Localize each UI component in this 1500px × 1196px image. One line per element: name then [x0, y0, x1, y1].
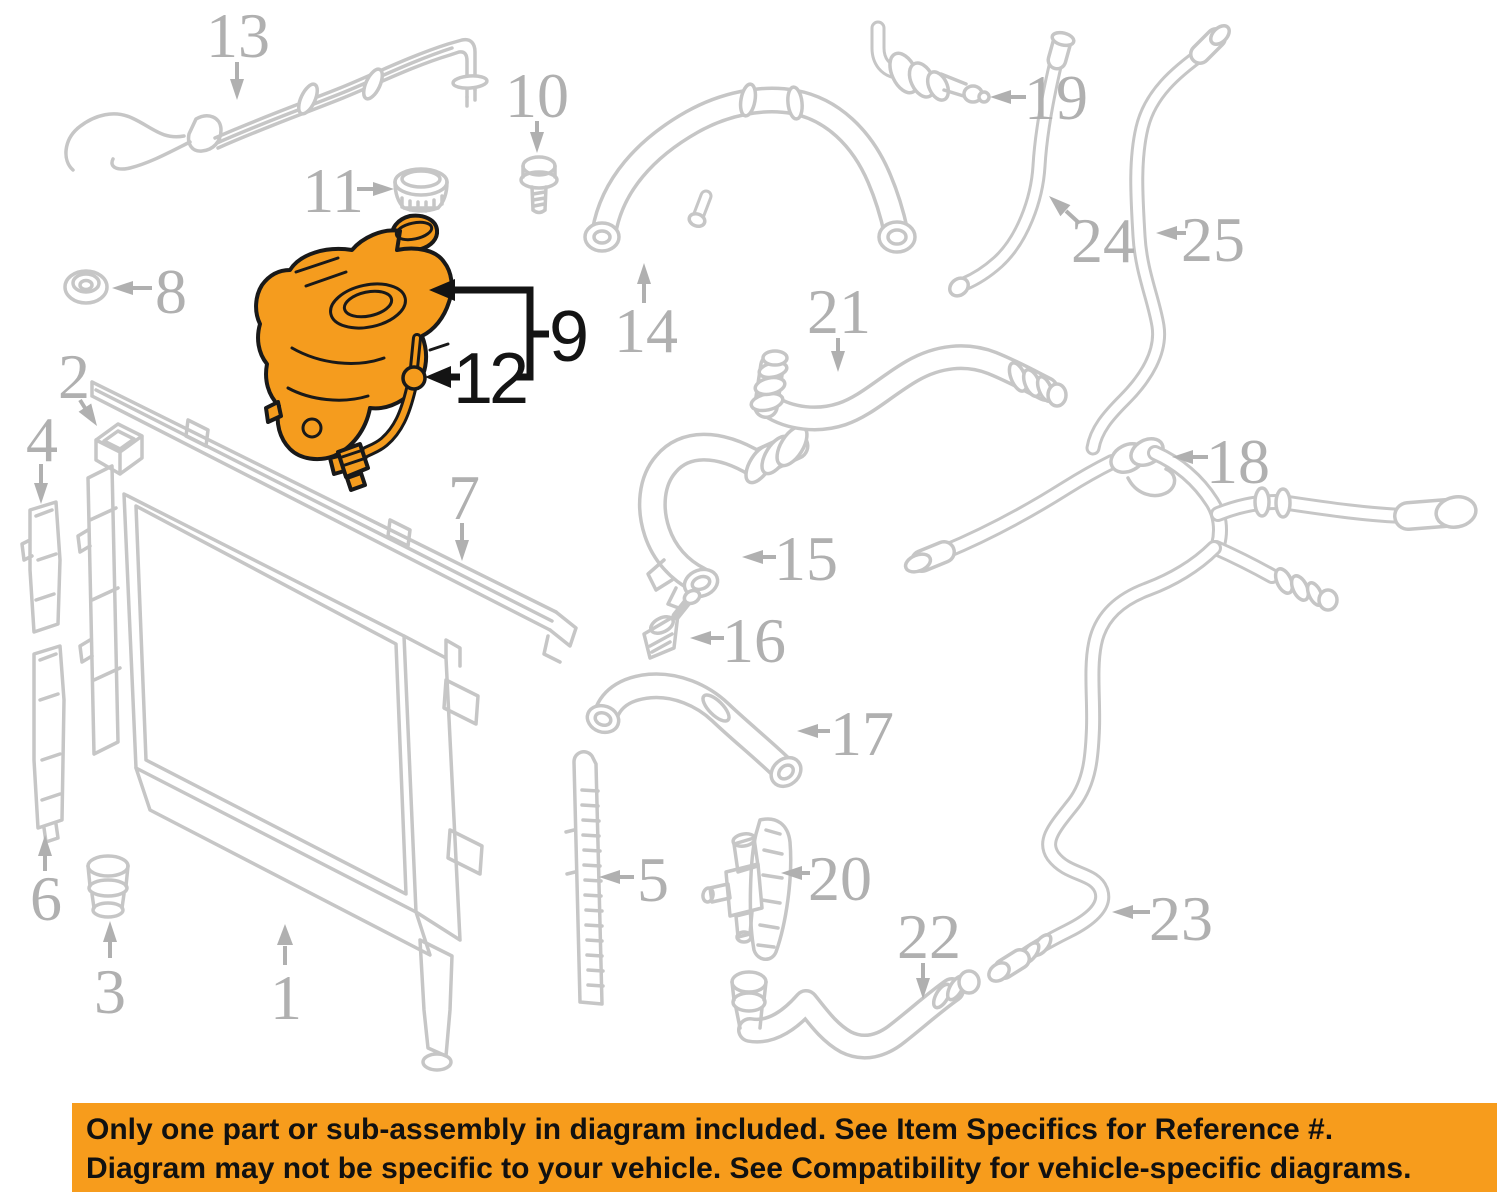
- callout-17-label: 17: [830, 698, 894, 769]
- part-2-bracket: [96, 424, 142, 474]
- part-10-bolt: [521, 157, 557, 213]
- callout-18: 18: [1172, 426, 1270, 497]
- callout-16-label: 16: [722, 605, 786, 676]
- part-6-side-bracket: [34, 646, 64, 842]
- callout-24: 24: [1049, 196, 1135, 276]
- callout-14: 14: [614, 263, 678, 366]
- callout-9-label: 9: [549, 297, 586, 377]
- callout-18-label: 18: [1206, 426, 1270, 497]
- callout-4-label: 4: [26, 404, 58, 475]
- part-19-connector: [878, 28, 989, 103]
- callout-7-label: 7: [448, 462, 480, 533]
- part-17-hose: [584, 686, 807, 792]
- callout-22-label: 22: [897, 901, 961, 972]
- callout-19: 19: [990, 62, 1088, 133]
- callout-20: 20: [781, 843, 872, 914]
- callout-17: 17: [797, 698, 894, 769]
- callout-4: 4: [26, 404, 58, 504]
- callout-7: 7: [448, 462, 480, 561]
- part-14-hose: [585, 83, 915, 252]
- part-16-drain-plug: [644, 588, 702, 658]
- callout-24-label: 24: [1071, 205, 1135, 276]
- callout-6-label: 6: [30, 863, 62, 934]
- part-8-grommet: [65, 271, 107, 303]
- callout-12: 12: [425, 339, 526, 419]
- callout-21-label: 21: [807, 276, 871, 347]
- disclaimer-line-2: Diagram may not be specific to your vehi…: [86, 1149, 1497, 1188]
- callout-8-label: 8: [155, 256, 187, 327]
- callout-8: 8: [112, 256, 187, 327]
- callout-5: 5: [599, 844, 669, 915]
- callout-25: 25: [1156, 204, 1245, 275]
- part-5-seal-strip: [566, 752, 603, 1004]
- part-22-hose: [732, 971, 979, 1047]
- callout-1-label: 1: [270, 962, 302, 1033]
- callout-3: 3: [94, 921, 126, 1027]
- part-21-hose: [750, 351, 1066, 418]
- callout-25-label: 25: [1181, 204, 1245, 275]
- callout-12-label: 12: [453, 339, 526, 419]
- callout-21: 21: [807, 276, 871, 372]
- callout-16: 16: [690, 605, 786, 676]
- callout-11-label: 11: [302, 155, 364, 226]
- parts-diagram-page: 13 10 11 8 2 4 6 3 1 7 5 14: [0, 0, 1500, 1196]
- part-20-sensor: [702, 819, 791, 959]
- callout-13-label: 13: [206, 0, 270, 71]
- callout-1: 1: [270, 924, 302, 1033]
- callout-11: 11: [302, 155, 394, 226]
- part-11-cap: [395, 169, 447, 211]
- diagram-canvas: 13 10 11 8 2 4 6 3 1 7 5 14: [0, 0, 1500, 1196]
- callout-6: 6: [30, 835, 62, 934]
- callout-2-label: 2: [58, 341, 90, 412]
- part-13-pipe-assembly: [66, 40, 487, 170]
- callout-10: 10: [505, 60, 569, 153]
- disclaimer-banner: Only one part or sub-assembly in diagram…: [72, 1103, 1497, 1192]
- callout-23-label: 23: [1149, 883, 1213, 954]
- callout-3-label: 3: [94, 956, 126, 1027]
- callout-15-label: 15: [774, 523, 838, 594]
- callout-13: 13: [206, 0, 270, 100]
- part-4-side-bracket: [22, 502, 60, 632]
- callout-10-label: 10: [505, 60, 569, 131]
- callout-14-label: 14: [614, 295, 678, 366]
- callout-20-label: 20: [808, 843, 872, 914]
- part-3-mount: [88, 856, 128, 917]
- callout-19-label: 19: [1024, 62, 1088, 133]
- disclaimer-line-1: Only one part or sub-assembly in diagram…: [86, 1110, 1497, 1149]
- callout-5-label: 5: [637, 844, 669, 915]
- callout-15: 15: [742, 523, 838, 594]
- part-9-expansion-tank: [256, 216, 452, 474]
- callout-23: 23: [1112, 883, 1213, 954]
